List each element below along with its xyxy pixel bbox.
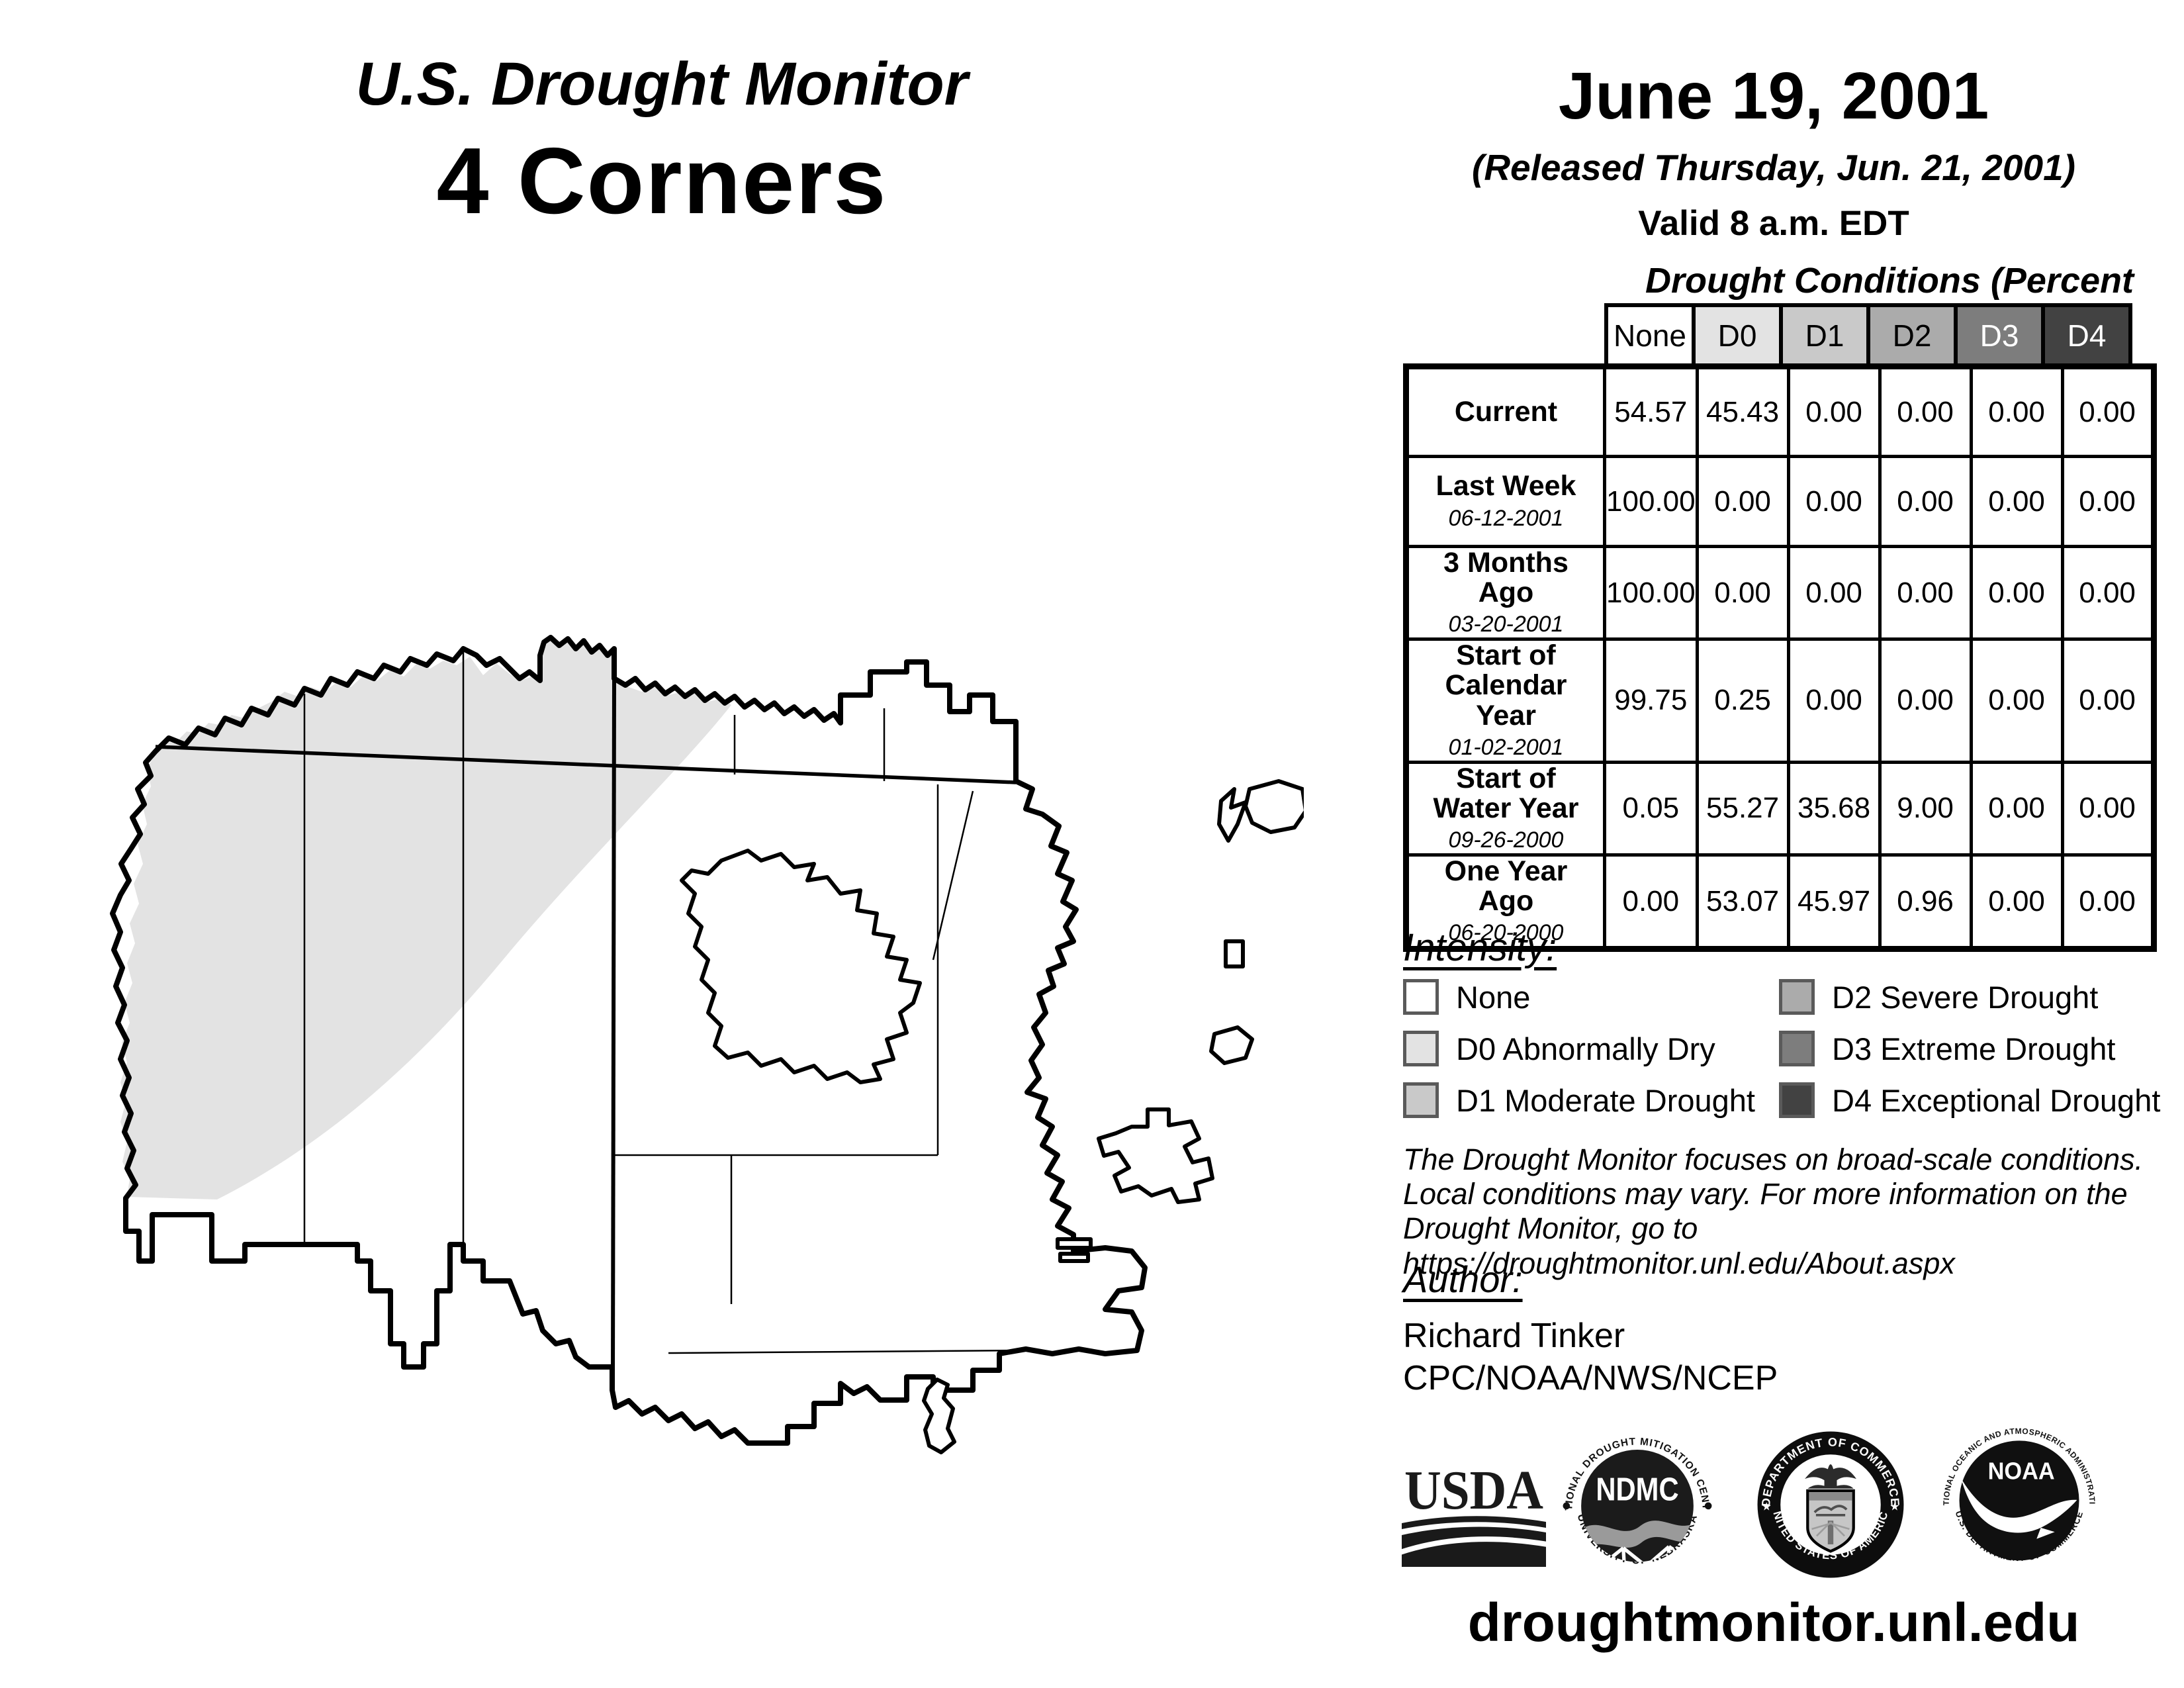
- cell-value: 0.00: [1788, 639, 1880, 762]
- disclaimer-line: The Drought Monitor focuses on broad-sca…: [1403, 1143, 2177, 1177]
- row-label: Current: [1414, 397, 1598, 427]
- row-date: 09-26-2000: [1414, 827, 1598, 853]
- legend-label: D3 Extreme Drought: [1832, 1031, 2115, 1067]
- drought-monitor-page: U.S. Drought Monitor 4 Corners June 19, …: [0, 0, 2184, 1688]
- cell-value: 0.00: [1697, 457, 1788, 547]
- row-label: Last Week: [1414, 471, 1598, 501]
- cell-value: 0.00: [2062, 367, 2154, 457]
- cell-value: 0.00: [2062, 762, 2154, 855]
- legend-swatch-d0: [1403, 1031, 1439, 1066]
- valid-time: Valid 8 a.m. EDT: [1403, 203, 2144, 244]
- drought-conditions-table: Current 54.57 45.43 0.00 0.00 0.00 0.00 …: [1403, 363, 2157, 952]
- column-header-none: None: [1604, 303, 1696, 367]
- cell-value: 100.00: [1605, 547, 1698, 639]
- legend-swatch-d4: [1779, 1082, 1815, 1118]
- table-row: Start of Water Year09-26-2000 0.05 55.27…: [1406, 762, 2154, 855]
- cell-value: 99.75: [1605, 639, 1698, 762]
- table-row: Current 54.57 45.43 0.00 0.00 0.00 0.00: [1406, 367, 2154, 457]
- legend-swatch-d1: [1403, 1082, 1439, 1118]
- legend-item-d2: D2 Severe Drought: [1779, 978, 2098, 1015]
- cell-value: 0.00: [1880, 547, 1971, 639]
- cell-value: 53.07: [1697, 855, 1788, 949]
- cell-value: 45.43: [1697, 367, 1788, 457]
- cell-value: 55.27: [1697, 762, 1788, 855]
- column-header-d0: D0: [1692, 303, 1783, 367]
- row-label: Start of Water Year: [1414, 764, 1598, 823]
- row-label: One Year Ago: [1414, 857, 1598, 916]
- map-date: June 19, 2001: [1403, 58, 2144, 134]
- cell-value: 0.00: [2062, 855, 2154, 949]
- page-title: U.S. Drought Monitor: [199, 50, 1125, 119]
- noaa-logo: NATIONAL OCEANIC AND ATMOSPHERIC ADMINIS…: [1939, 1422, 2099, 1582]
- legend-title: Intensity:: [1403, 925, 1557, 970]
- commerce-star-right: ★: [1889, 1500, 1899, 1513]
- table-row: Last Week06-12-2001 100.00 0.00 0.00 0.0…: [1406, 457, 2154, 547]
- region-title: 4 Corners: [199, 127, 1125, 236]
- column-header-d4: D4: [2041, 303, 2132, 367]
- cell-value: 0.00: [1788, 457, 1880, 547]
- commerce-shield-chief: [1809, 1492, 1852, 1501]
- row-label: Start of Calendar Year: [1414, 641, 1598, 730]
- legend-label: D4 Exceptional Drought: [1832, 1082, 2160, 1119]
- table-row: 3 Months Ago03-20-2001 100.00 0.00 0.00 …: [1406, 547, 2154, 639]
- cell-value: 35.68: [1788, 762, 1880, 855]
- cell-value: 0.00: [1971, 547, 2062, 639]
- row-label: 3 Months Ago: [1414, 548, 1598, 608]
- ndmc-logo-text: NDMC: [1596, 1472, 1678, 1507]
- cell-value: 0.00: [1971, 367, 2062, 457]
- cell-value: 0.00: [1971, 639, 2062, 762]
- legend-item-d1: D1 Moderate Drought: [1403, 1082, 1755, 1119]
- legend-label: D0 Abnormally Dry: [1456, 1031, 1715, 1067]
- legend-item-d3: D3 Extreme Drought: [1779, 1030, 2115, 1067]
- author-name: Richard Tinker: [1403, 1316, 1625, 1356]
- four-corners-drought-map: [46, 616, 1304, 1470]
- noaa-logo-text: NOAA: [1988, 1458, 2055, 1484]
- released-date: (Released Thursday, Jun. 21, 2001): [1403, 146, 2144, 189]
- cell-value: 0.00: [1971, 855, 2062, 949]
- legend-item-d0: D0 Abnormally Dry: [1403, 1030, 1715, 1067]
- legend-swatch-d2: [1779, 979, 1815, 1015]
- table-row: Start of Calendar Year01-02-2001 99.75 0…: [1406, 639, 2154, 762]
- legend-label: None: [1456, 979, 1530, 1015]
- cell-value: 0.00: [1788, 547, 1880, 639]
- ndmc-side-dot-left: [1563, 1503, 1570, 1510]
- legend-swatch-none: [1403, 979, 1439, 1015]
- date-block: June 19, 2001 (Released Thursday, Jun. 2…: [1403, 58, 2144, 244]
- cell-value: 0.05: [1605, 762, 1698, 855]
- ndmc-logo: NATIONAL DROUGHT MITIGATION CENTER UNIVE…: [1557, 1427, 1718, 1589]
- cell-value: 9.00: [1880, 762, 1971, 855]
- cell-value: 0.00: [2062, 547, 2154, 639]
- cell-value: 0.00: [2062, 639, 2154, 762]
- row-date: 06-12-2001: [1414, 506, 1598, 532]
- usda-logo: USDA: [1402, 1460, 1546, 1567]
- map-state-line-vertical: [613, 679, 614, 1377]
- author-org: CPC/NOAA/NWS/NCEP: [1403, 1358, 1778, 1398]
- row-date: 03-20-2001: [1414, 612, 1598, 637]
- author-heading: Author:: [1403, 1258, 1523, 1301]
- table-header-row: None D0 D1 D2 D3 D4: [1604, 303, 2132, 367]
- cell-value: 0.00: [1880, 367, 1971, 457]
- cell-value: 0.00: [1880, 639, 1971, 762]
- legend-item-none: None: [1403, 978, 1530, 1015]
- cell-value: 0.25: [1697, 639, 1788, 762]
- cell-value: 0.00: [1971, 762, 2062, 855]
- legend-item-d4: D4 Exceptional Drought: [1779, 1082, 2160, 1119]
- footer-url: droughtmonitor.unl.edu: [1403, 1592, 2144, 1654]
- cell-value: 54.57: [1605, 367, 1698, 457]
- row-date: 01-02-2001: [1414, 735, 1598, 761]
- legend-swatch-d3: [1779, 1031, 1815, 1066]
- cell-value: 45.97: [1788, 855, 1880, 949]
- disclaimer-line: Local conditions may vary. For more info…: [1403, 1177, 2177, 1211]
- cell-value: 0.96: [1880, 855, 1971, 949]
- commerce-star-left: ★: [1762, 1500, 1772, 1513]
- column-header-d2: D2: [1866, 303, 1958, 367]
- title-block: U.S. Drought Monitor 4 Corners: [199, 50, 1125, 236]
- cell-value: 0.00: [1788, 367, 1880, 457]
- column-header-d3: D3: [1954, 303, 2045, 367]
- cell-value: 0.00: [1605, 855, 1698, 949]
- ndmc-side-dot-right: [1705, 1503, 1712, 1510]
- cell-value: 0.00: [1697, 547, 1788, 639]
- legend-label: D1 Moderate Drought: [1456, 1082, 1755, 1119]
- usda-logo-text: USDA: [1404, 1460, 1543, 1521]
- cell-value: 100.00: [1605, 457, 1698, 547]
- cell-value: 0.00: [1880, 457, 1971, 547]
- legend-label: D2 Severe Drought: [1832, 979, 2098, 1015]
- cell-value: 0.00: [1971, 457, 2062, 547]
- column-header-d1: D1: [1779, 303, 1870, 367]
- commerce-seal-logo: DEPARTMENT OF COMMERCE UNITED STATES OF …: [1751, 1425, 1911, 1585]
- cell-value: 0.00: [2062, 457, 2154, 547]
